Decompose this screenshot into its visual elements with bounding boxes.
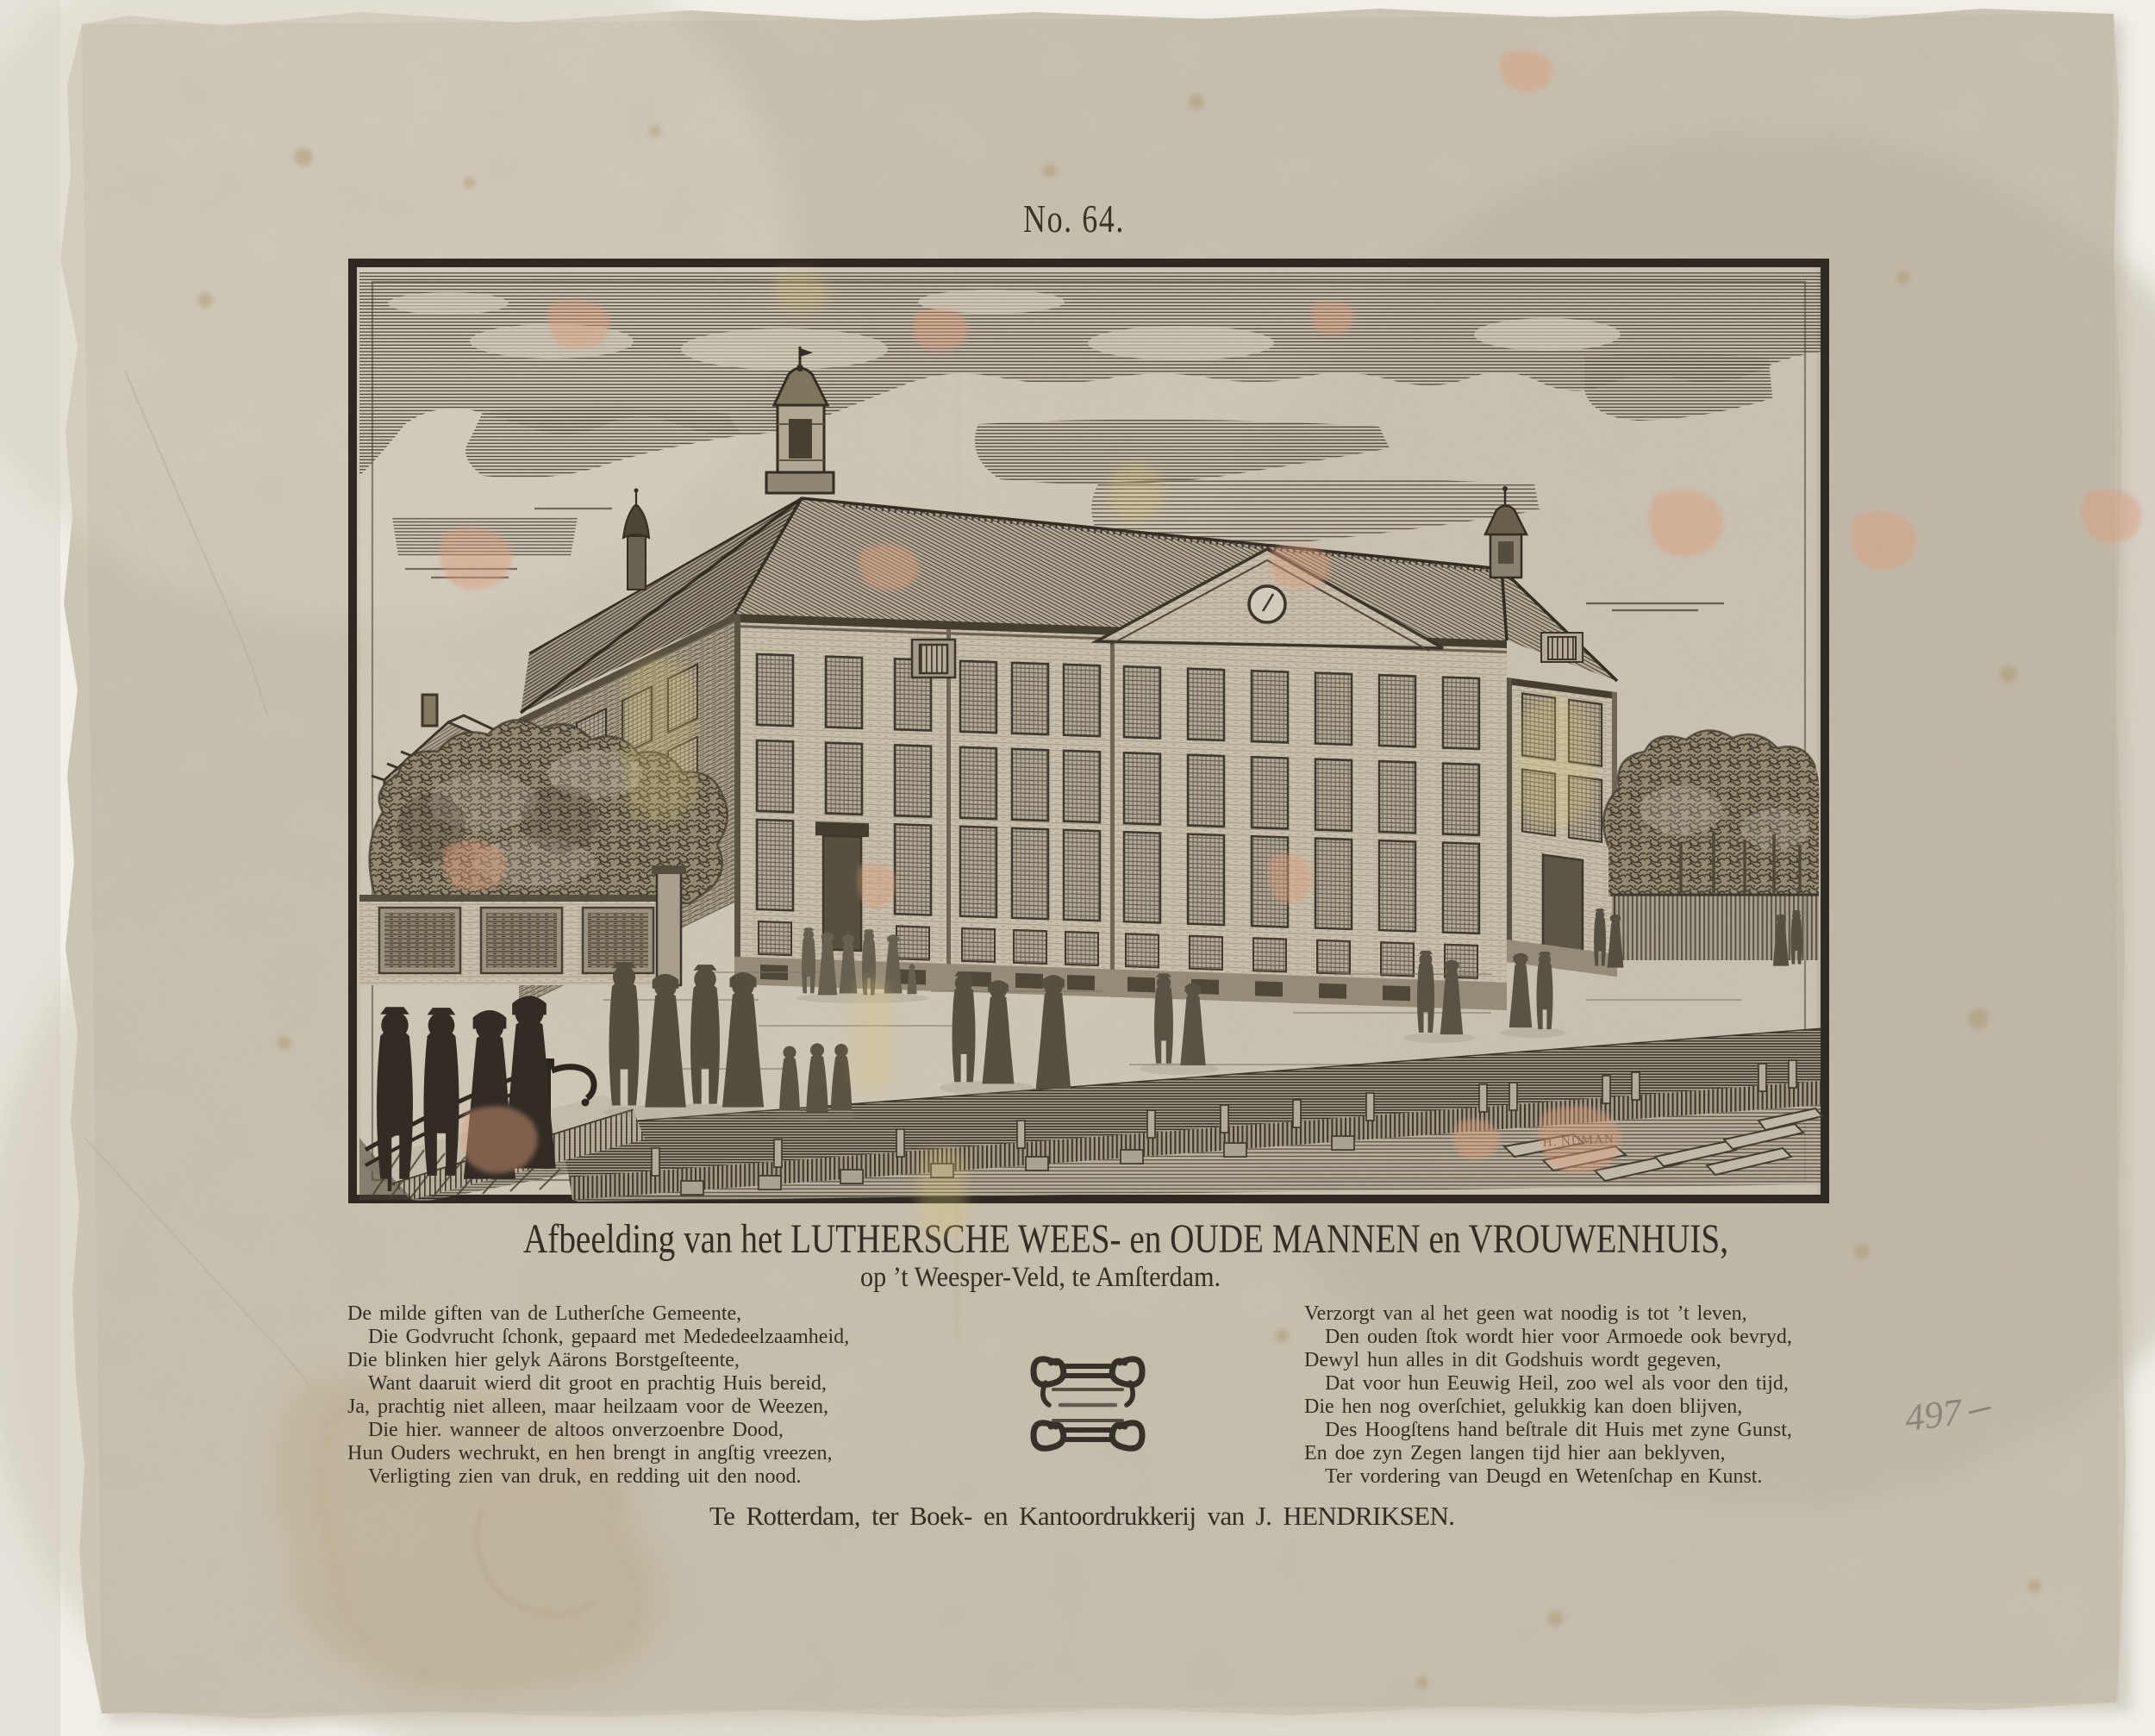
svg-text:497: 497 [1902,1390,1965,1439]
svg-text:Die hier. wanneer de altoos on: Die hier. wanneer de altoos onverzoenbre… [368,1419,784,1441]
svg-text:Dat voor hun Eeuwig Heil, zoo: Dat voor hun Eeuwig Heil, zoo wel als vo… [1325,1372,1789,1395]
svg-text:Ja, prachtig niet alleen, maar: Ja, prachtig niet alleen, maar heilzaam … [347,1396,828,1418]
svg-text:Die hen nog overſchiet, gelukk: Die hen nog overſchiet, gelukkig kan doe… [1304,1396,1742,1418]
svg-text:Den ouden ſtok wordt hier voor: Den ouden ſtok wordt hier voor Armoede o… [1325,1326,1792,1348]
svg-text:Die blinken hier gelyk Aärons: Die blinken hier gelyk Aärons Borstgeſte… [347,1349,740,1371]
svg-text:Verligting zien van druk, en r: Verligting zien van druk, en redding uit… [368,1465,802,1488]
svg-text:En doe zyn Zegen langen tijd h: En doe zyn Zegen langen tijd hier aan be… [1304,1442,1726,1464]
svg-text:Ter vordering van Deugd en Wet: Ter vordering van Deugd en Wetenſchap en… [1325,1465,1762,1488]
svg-text:Dewyl hun alles in dit Godshui: Dewyl hun alles in dit Godshuis wordt ge… [1304,1349,1721,1371]
svg-text:Hun Ouders wechrukt, en hen br: Hun Ouders wechrukt, en hen brengt in an… [347,1442,833,1464]
svg-text:Afbeelding van het LUTHERSCHE: Afbeelding van het LUTHERSCHE WEES- en O… [523,1216,1728,1262]
svg-text:De milde giften van de Lutherſ: De milde giften van de Lutherſche Gemeen… [347,1302,741,1325]
svg-text:No. 64.: No. 64. [1023,197,1125,240]
svg-text:Te Rotterdam, ter Boek- en Kan: Te Rotterdam, ter Boek- en Kantoordrukke… [709,1501,1455,1531]
svg-text:Des Hoogſtens hand beſtrale di: Des Hoogſtens hand beſtrale dit Huis met… [1325,1419,1792,1441]
svg-text:Die Godvrucht ſchonk, gepaard: Die Godvrucht ſchonk, gepaard met Medede… [368,1326,849,1348]
svg-text:Verzorgt van al het geen wat n: Verzorgt van al het geen wat noodig is t… [1304,1302,1747,1325]
svg-text:Want daaruit wierd dit groot e: Want daaruit wierd dit groot en prachtig… [368,1372,827,1395]
svg-text:op ’t Weesper-Veld, te Amſterd: op ’t Weesper-Veld, te Amſterdam. [860,1262,1221,1293]
